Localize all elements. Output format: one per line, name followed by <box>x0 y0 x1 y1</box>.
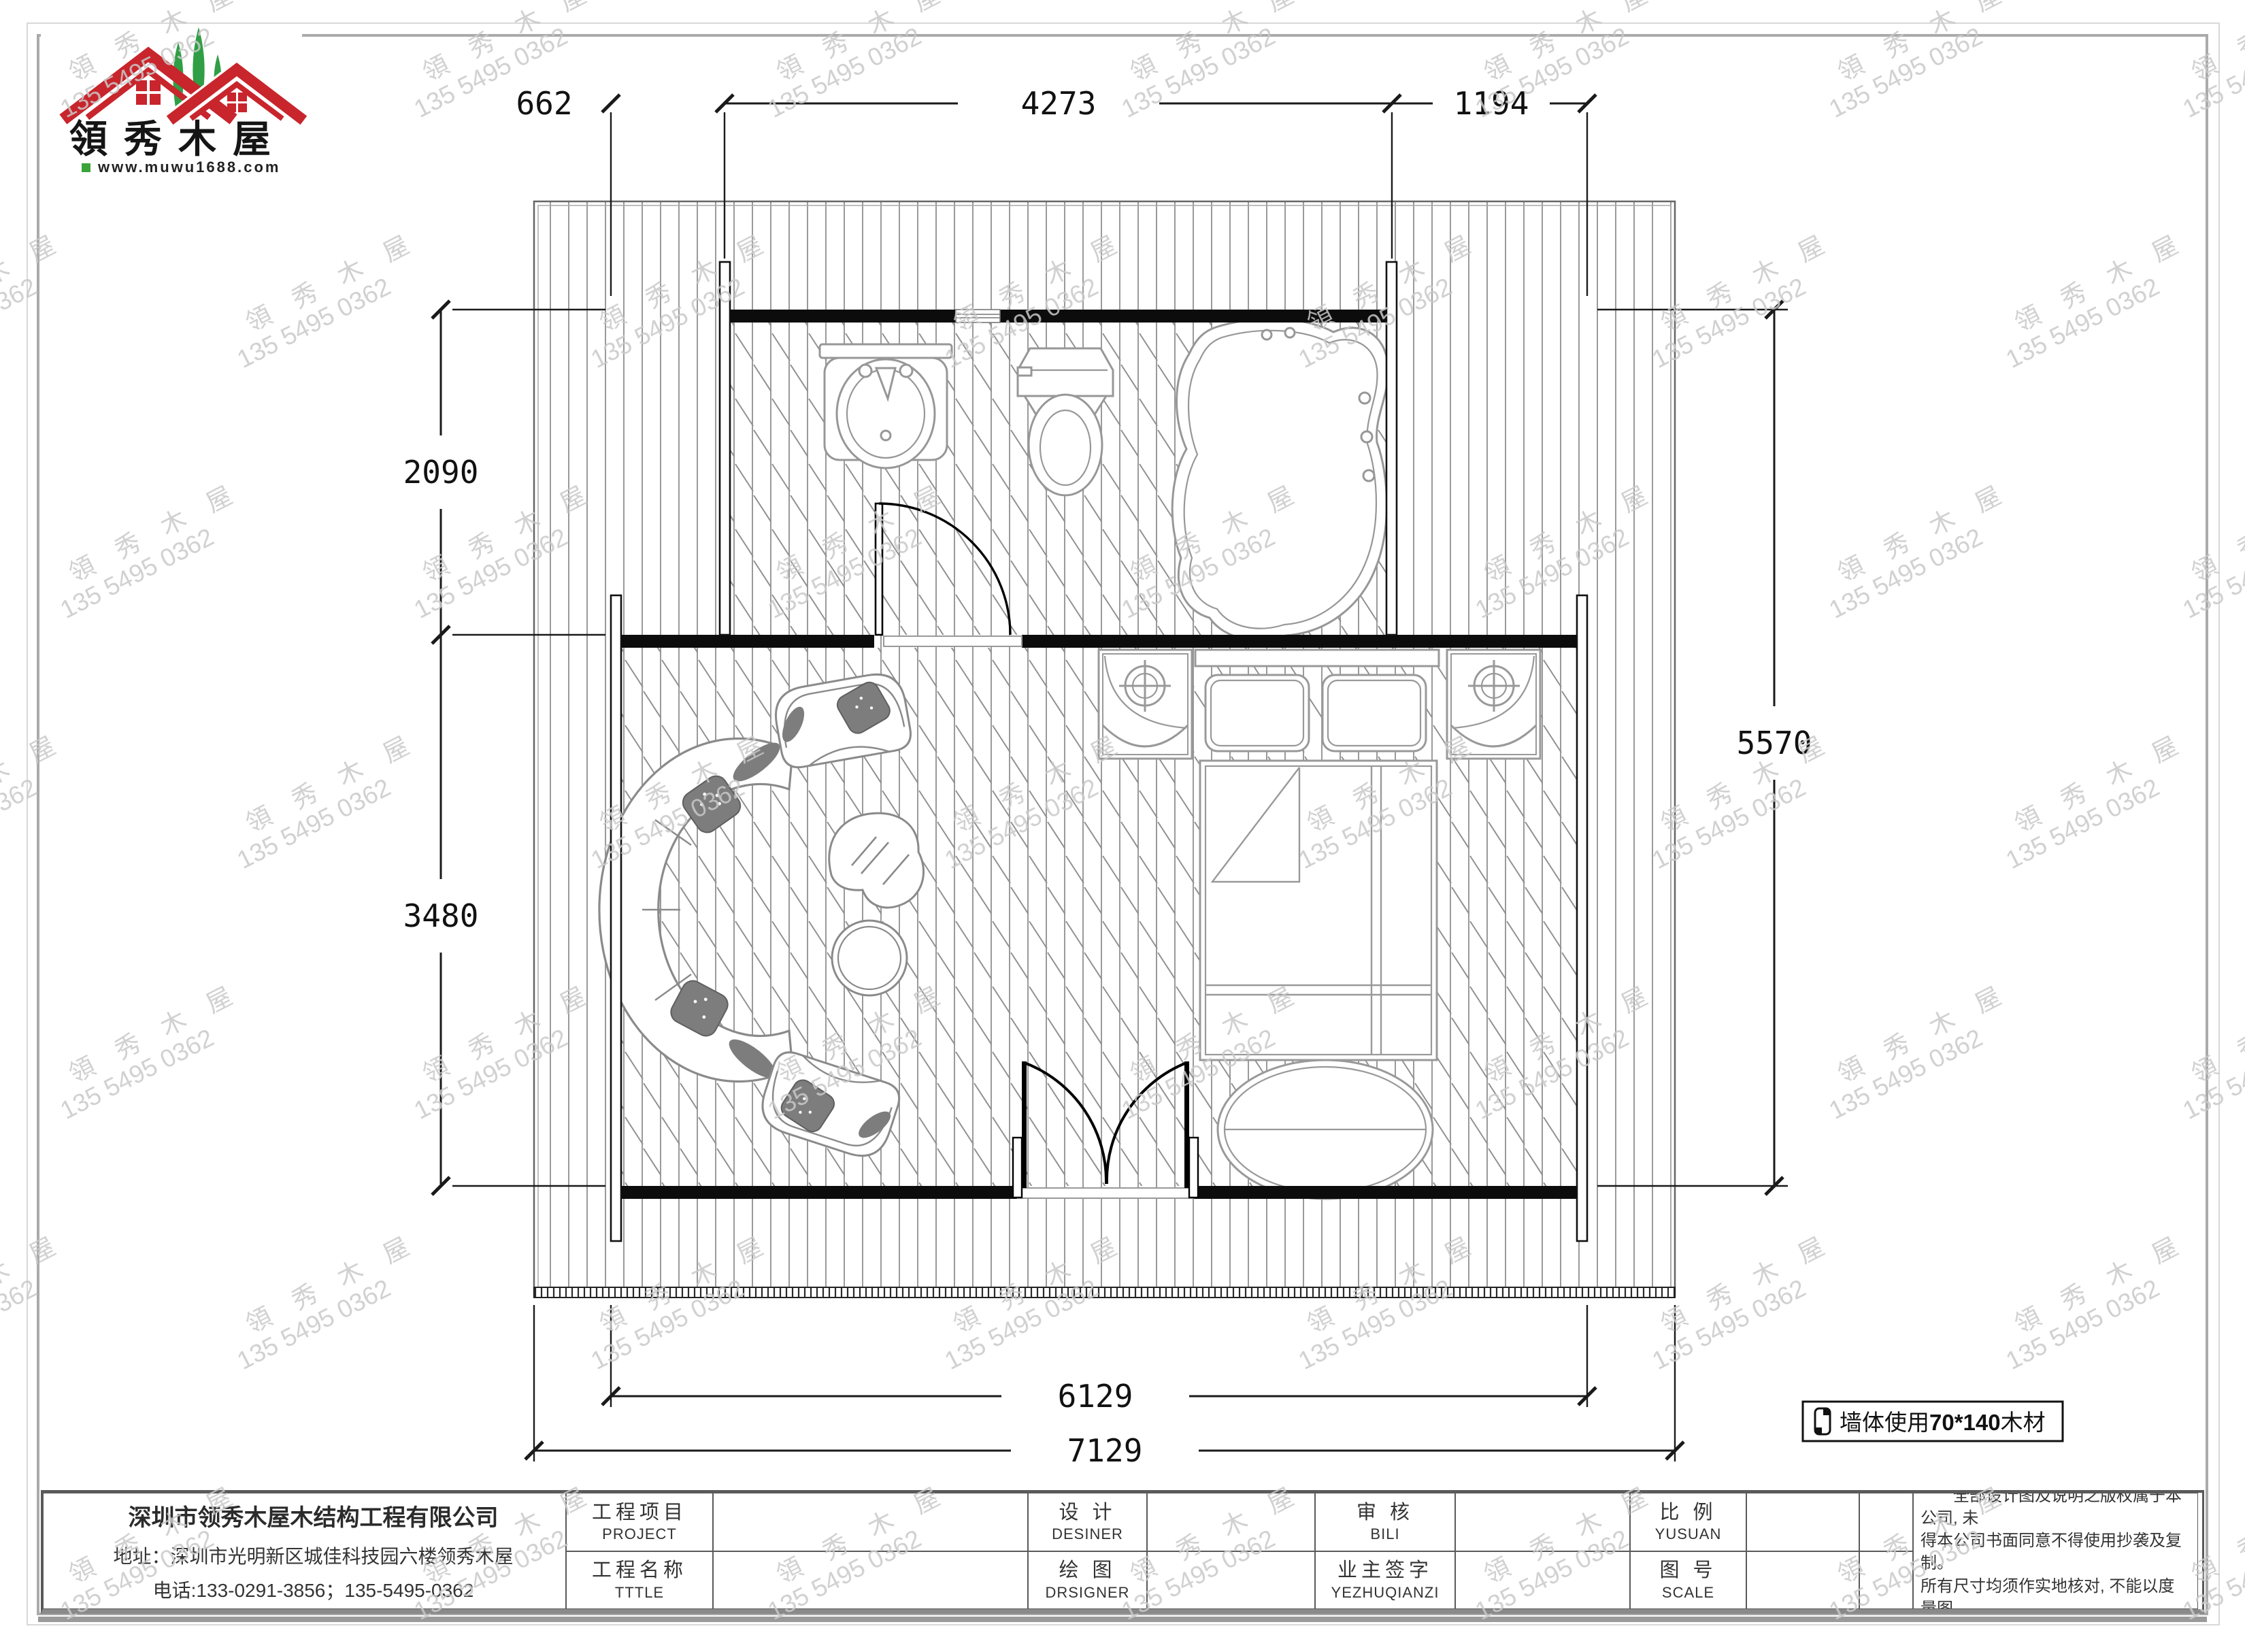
logo-brand: 領秀木屋 <box>69 118 287 161</box>
svg-text:墙体使用70*140木材: 墙体使用70*140木材 <box>1840 1410 2046 1435</box>
label-scale-en: YUSUAN <box>1655 1525 1722 1544</box>
logo-bullet-icon <box>82 163 90 172</box>
company-name: 深圳市领秀木屋木结构工程有限公司 <box>129 1499 499 1532</box>
dim-bottom: 6129 7129 <box>525 1305 1684 1469</box>
label-project-en: PROJECT <box>602 1525 677 1544</box>
label-design: 设 计 DESINER <box>1028 1493 1147 1551</box>
label-design-cn: 设 计 <box>1059 1500 1116 1525</box>
bathtub <box>1172 319 1388 640</box>
wall-top <box>729 310 1386 323</box>
dim-label-5570: 5570 <box>1737 725 1812 761</box>
dim-label-2090: 2090 <box>403 454 479 491</box>
value-review <box>1455 1493 1630 1551</box>
label-scale: 比 例 YUSUAN <box>1630 1493 1746 1551</box>
value-owner <box>1455 1551 1630 1610</box>
value-project <box>713 1493 1028 1551</box>
notes-line: 得本公司书面同意不得使用抄袭及复制。 <box>1920 1530 2191 1574</box>
ottoman <box>832 921 907 995</box>
label-title-cn: 工程名称 <box>592 1558 687 1583</box>
value-design <box>1147 1493 1315 1551</box>
wall-note-suffix: 木材 <box>2001 1410 2046 1435</box>
label-project: 工程项目 PROJECT <box>566 1493 713 1551</box>
label-design-en: DESINER <box>1052 1525 1123 1544</box>
label-title: 工程名称 TTTLE <box>566 1551 713 1610</box>
floor-plan-sheet: 662 4273 1194 2090 3480 <box>0 0 2245 1652</box>
dim-label-4273: 4273 <box>1021 85 1097 122</box>
value-title <box>713 1551 1028 1610</box>
wall-right <box>1577 595 1587 1241</box>
label-title-en: TTTLE <box>615 1583 664 1602</box>
deck-edge-hatch <box>534 1287 1675 1298</box>
round-table <box>1218 1060 1433 1199</box>
title-block: 深圳市领秀木屋木结构工程有限公司 地址：深圳市光明新区城佳科技园六楼领秀木屋 电… <box>41 1490 2204 1614</box>
logo: 領秀木屋 www.muwu1688.com <box>41 27 302 180</box>
wall-middle-left <box>621 635 874 648</box>
notes: 备注: 全部设计图及说明之版权属于本公司, 未 得本公司书面同意不得使用抄袭及复… <box>1913 1493 2198 1609</box>
notes-line: 所有尺寸均须作实地核对, 不能以度量图 <box>1920 1575 2191 1609</box>
wall-middle-right <box>1022 635 1577 648</box>
label-number: 图 号 SCALE <box>1630 1551 1746 1610</box>
wall-material-note: 墙体使用70*140木材 <box>1803 1402 2063 1441</box>
wall-bottom-left <box>621 1186 1017 1199</box>
cell-empty-bottom <box>1859 1551 1913 1610</box>
dim-label-1194: 1194 <box>1454 85 1529 122</box>
company-phone: 电话:133-0291-3856；135-5495-0362 <box>153 1576 474 1603</box>
dim-label-3480: 3480 <box>403 897 479 934</box>
label-project-cn: 工程项目 <box>592 1500 687 1525</box>
dim-label-7129: 7129 <box>1067 1432 1143 1469</box>
label-draw-en: DRSIGNER <box>1045 1583 1129 1602</box>
wall-bath-left <box>720 262 730 635</box>
window-top <box>956 310 1000 323</box>
wall-note-prefix: 墙体使用 <box>1840 1410 1929 1435</box>
label-review: 审 核 BILI <box>1315 1493 1455 1551</box>
wall-left <box>611 595 621 1241</box>
label-scale-cn: 比 例 <box>1659 1500 1716 1525</box>
label-number-en: SCALE <box>1662 1583 1714 1602</box>
logo-url: www.muwu1688.com <box>97 159 280 176</box>
wall-bottom-right <box>1194 1186 1577 1199</box>
company-address: 地址：深圳市光明新区城佳科技园六楼领秀木屋 <box>113 1542 513 1569</box>
label-review-en: BILI <box>1370 1525 1399 1544</box>
value-draw <box>1147 1551 1315 1610</box>
label-review-cn: 审 核 <box>1357 1500 1414 1525</box>
wall-bath-right <box>1386 262 1397 635</box>
label-owner-cn: 业主签字 <box>1337 1558 1433 1583</box>
dim-label-662: 662 <box>516 85 572 122</box>
nightstand-left <box>1099 650 1192 759</box>
label-draw-cn: 绘 图 <box>1059 1558 1116 1583</box>
label-owner-en: YEZHUQIANZI <box>1331 1583 1440 1602</box>
sink <box>820 344 952 468</box>
value-scale <box>1746 1493 1859 1551</box>
label-draw: 绘 图 DRSIGNER <box>1028 1551 1147 1610</box>
label-number-cn: 图 号 <box>1659 1558 1716 1583</box>
value-number <box>1746 1551 1859 1610</box>
dim-label-6129: 6129 <box>1058 1378 1133 1415</box>
cell-empty-top <box>1859 1493 1913 1551</box>
nightstand-right <box>1447 650 1540 759</box>
notes-line: 全部设计图及说明之版权属于本公司, 未 <box>1920 1493 2191 1530</box>
company-info: 深圳市领秀木屋木结构工程有限公司 地址：深圳市光明新区城佳科技园六楼领秀木屋 电… <box>43 1493 566 1609</box>
wall-note-size: 70*140 <box>1929 1410 2001 1435</box>
label-owner: 业主签字 YEZHUQIANZI <box>1315 1551 1455 1610</box>
